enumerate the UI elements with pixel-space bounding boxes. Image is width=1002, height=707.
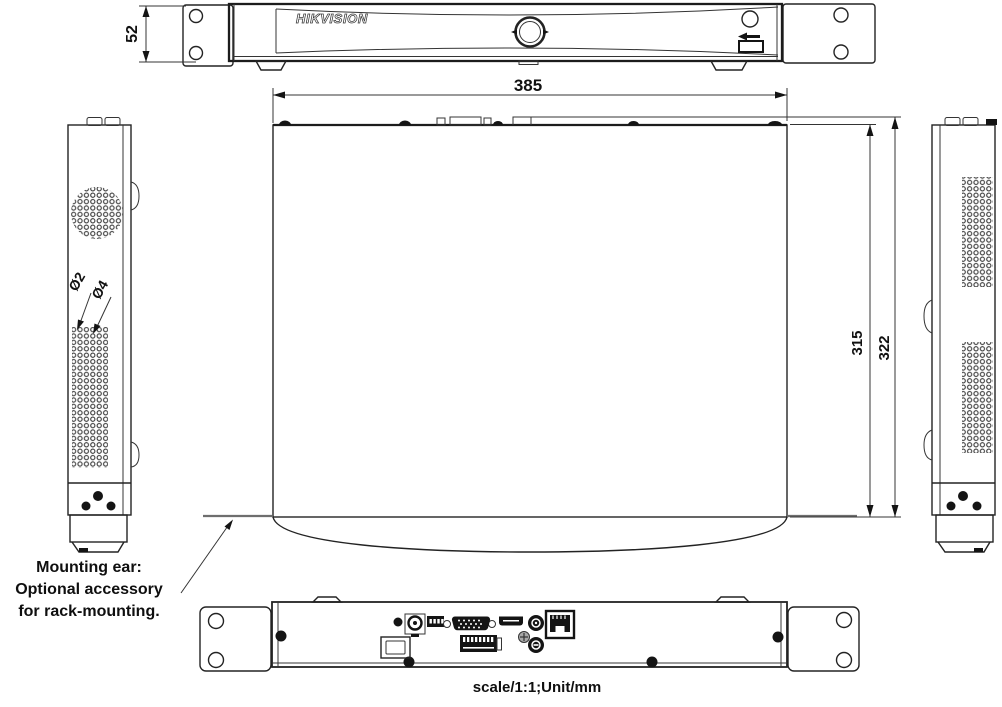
hole-dia-large-label: Ø4 <box>88 277 111 301</box>
front-foot <box>711 61 747 70</box>
ear-tab <box>924 430 932 460</box>
rear-connectors-top <box>279 117 901 125</box>
front-panel-bulge <box>273 517 787 552</box>
hikvision-logo: HIKVISION <box>296 11 368 26</box>
screw <box>107 502 116 511</box>
mounting-ear-right <box>788 607 859 671</box>
dim-52-label: 52 <box>124 25 141 43</box>
scale-note: scale/1:1;Unit/mm <box>387 679 687 696</box>
mounting-ear-note-line2: Optional accessory <box>0 579 178 601</box>
mounting-ear-note: Mounting ear: Optional accessory for rac… <box>0 557 178 623</box>
ear-tab <box>924 300 932 333</box>
front-foot <box>256 61 286 70</box>
drawing-canvas: HIKVISION 52 385 <box>0 0 1002 707</box>
terminal-block <box>460 635 502 652</box>
ground-screw-icon <box>394 618 403 627</box>
dim-height-52: 52 <box>124 6 196 62</box>
vent-grid <box>962 177 993 287</box>
ear-hole <box>834 45 848 59</box>
vent-cluster <box>71 187 123 239</box>
front-view: HIKVISION <box>183 4 875 70</box>
front-ring <box>511 18 549 47</box>
power-indicator-icon <box>742 11 758 27</box>
screw <box>276 631 287 642</box>
vent-grid <box>962 342 993 453</box>
ear-hole <box>190 10 203 23</box>
right-side-view <box>924 118 997 553</box>
rear-view <box>200 597 859 671</box>
screw <box>973 502 982 511</box>
dim-385-label: 385 <box>514 76 542 95</box>
audio-jacks <box>528 615 544 653</box>
vga-port <box>444 616 496 630</box>
mounting-ear-note-line3: for rack-mounting. <box>0 601 178 623</box>
ear-hole <box>834 8 848 22</box>
dim-depth-315: 315 <box>790 125 876 518</box>
side-foot <box>70 515 127 542</box>
left-side-view <box>68 118 139 553</box>
ethernet-port <box>546 611 574 638</box>
dim-depth-322: 322 <box>790 117 901 517</box>
dim-322-label: 322 <box>876 335 893 360</box>
top-view <box>203 117 901 552</box>
mounting-ear-leader <box>181 520 233 594</box>
serial-connector <box>427 616 444 627</box>
dim-315-label: 315 <box>849 330 866 355</box>
vent-hole-callouts: Ø2 Ø4 <box>65 269 111 334</box>
vent-grid <box>72 327 108 468</box>
ear-tab <box>131 182 139 210</box>
screw <box>647 657 658 668</box>
screw <box>773 632 784 643</box>
ear-tab <box>131 442 139 467</box>
ear-hole <box>190 47 203 60</box>
power-switch <box>381 637 410 658</box>
top-chassis <box>273 125 787 517</box>
side-foot <box>936 515 993 542</box>
screw <box>958 491 968 501</box>
panel-screw <box>519 632 530 643</box>
power-jack <box>405 614 425 637</box>
ear-hole <box>209 614 224 629</box>
rear-chassis <box>272 602 787 667</box>
ear-hole <box>837 613 852 628</box>
dim-width-385: 385 <box>273 76 787 123</box>
front-bezel-curve-bottom <box>276 48 778 55</box>
ear-hole <box>209 653 224 668</box>
hdmi-port <box>499 617 523 626</box>
screw <box>82 502 91 511</box>
mounting-ear-note-line1: Mounting ear: <box>0 557 178 579</box>
screw <box>947 502 956 511</box>
mounting-ear-right <box>783 4 875 63</box>
screw <box>93 491 103 501</box>
usb-icon <box>738 33 763 53</box>
ear-hole <box>837 653 852 668</box>
